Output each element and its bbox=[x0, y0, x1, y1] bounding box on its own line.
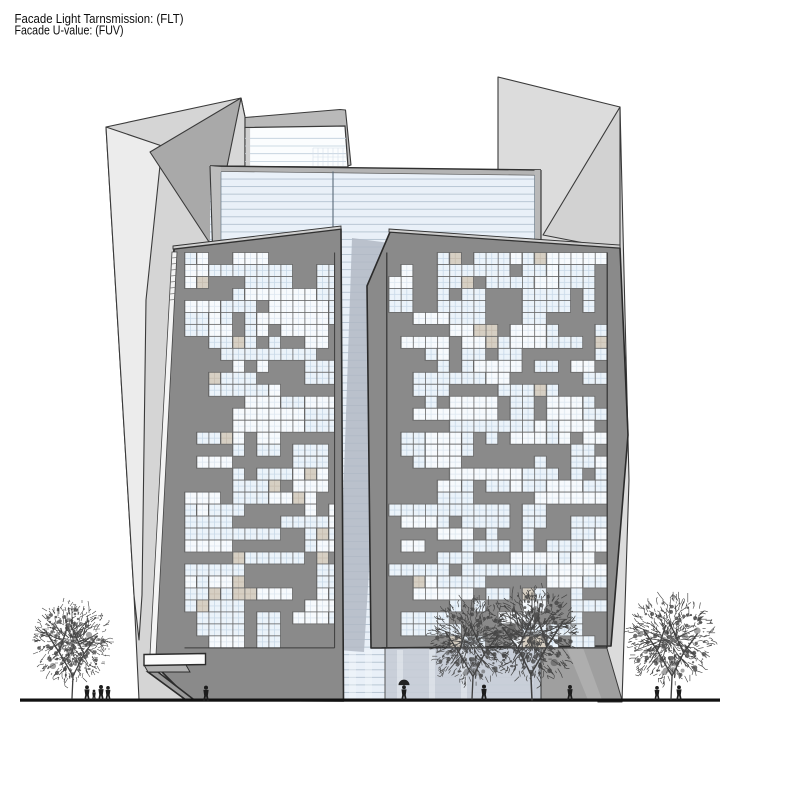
svg-text:Facade U-value: (FUV): Facade U-value: (FUV) bbox=[15, 23, 124, 38]
